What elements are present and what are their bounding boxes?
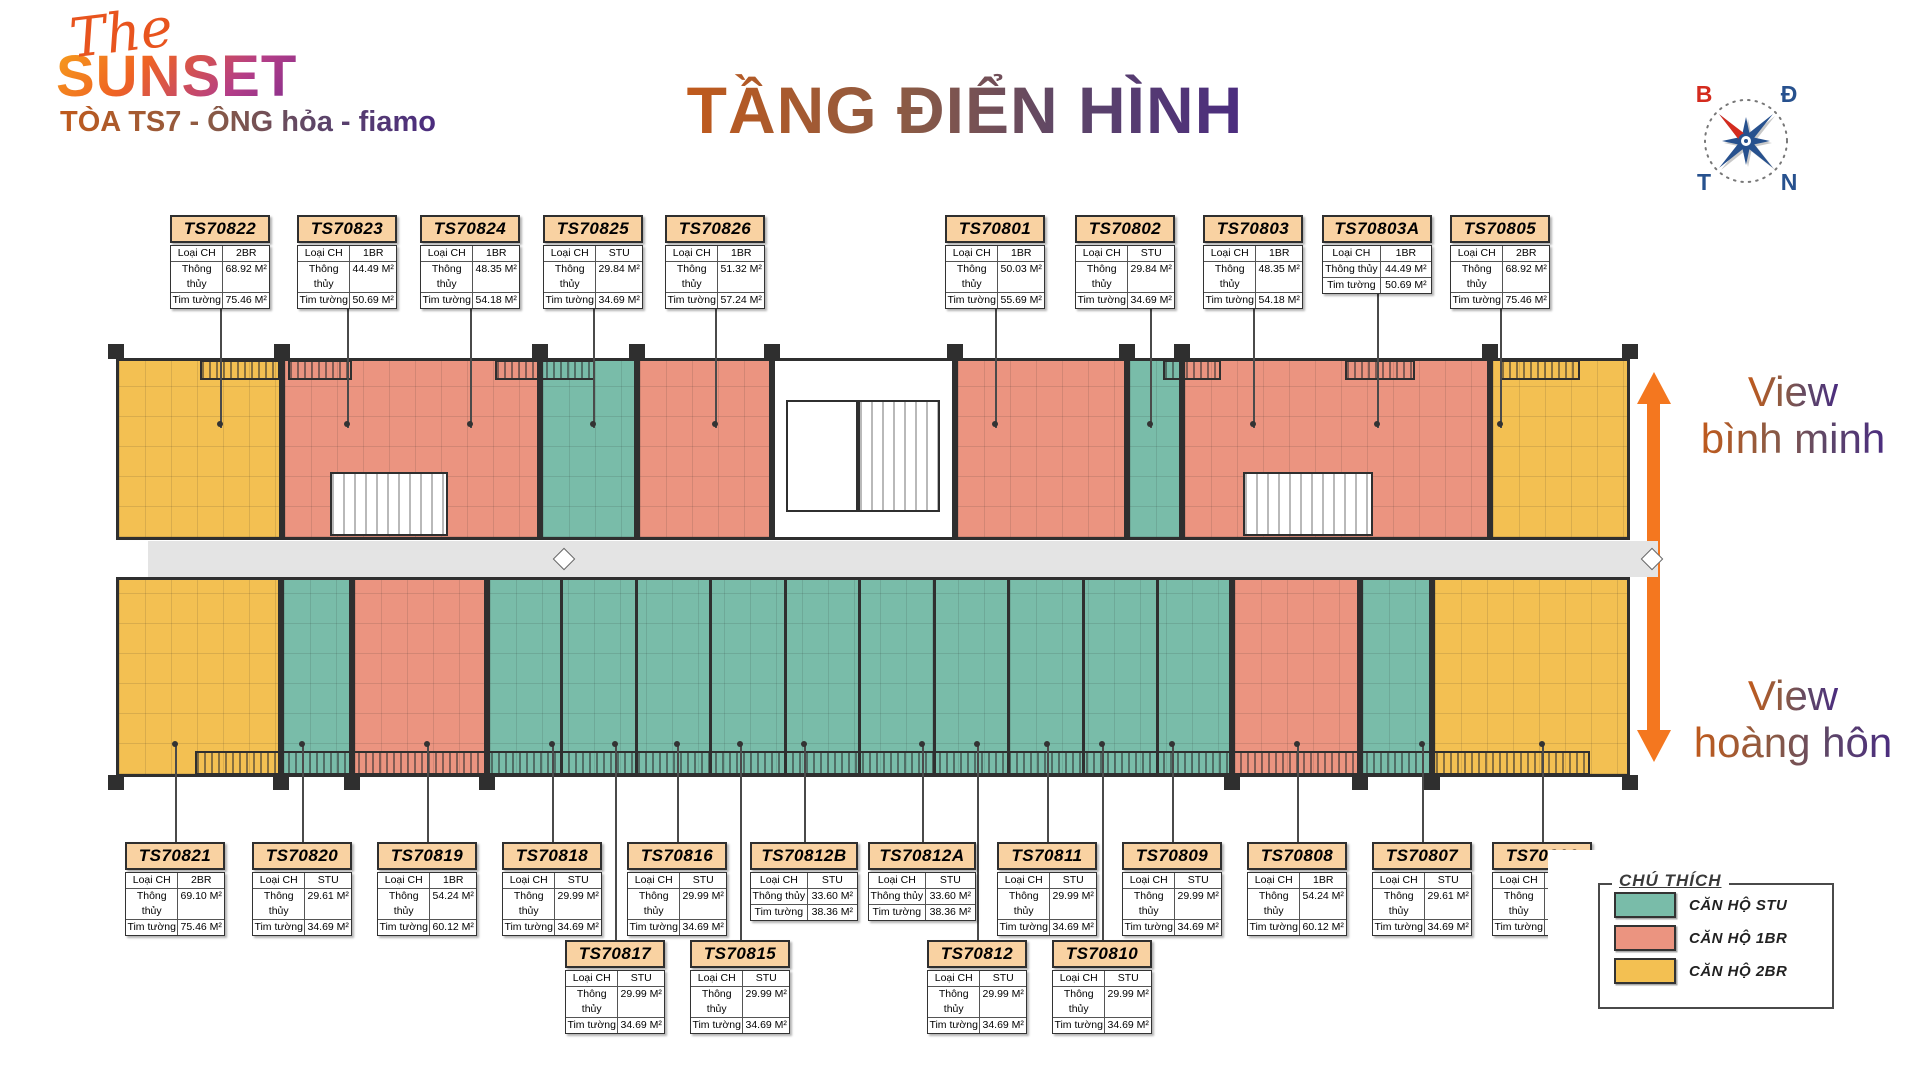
unit-type-row: Loại CH STU [1373,873,1471,888]
wall-stub [1424,775,1440,790]
unit-wall-area-row: Tim tường 34.69 M² [1053,1017,1151,1033]
connector-dot [172,741,178,747]
connector-line [1542,744,1544,842]
wall-stub [344,775,360,790]
unit-id: TS70812A [868,842,976,870]
unit-id: TS70815 [690,940,790,968]
unit-type-value: 1BR [1300,873,1346,888]
stair-core [1243,472,1373,536]
unit-card-body: Loại CH 1BR Thông thủy 50.03 M² Tim tườn… [945,245,1045,309]
unit-clear-area-value: 29.99 M² [1105,987,1151,1017]
unit-wall-area-value: 60.12 M² [1300,920,1346,935]
unit-wall-area-row: Tim tường 75.46 M² [1451,292,1549,308]
balcony [495,360,595,380]
unit-id: TS70820 [252,842,352,870]
unit-card: TS70824 Loại CH 1BR Thông thủy 48.35 M² … [420,215,520,309]
legend-swatch [1614,958,1676,984]
unit-clear-area-value: 48.35 M² [1256,262,1302,292]
unit-type-value: 1BR [473,246,519,261]
unit-id: TS70805 [1450,215,1550,243]
unit-id: TS70821 [125,842,225,870]
unit-type-value: 1BR [718,246,764,261]
unit-type-row: Loại CH 1BR [378,873,476,888]
unit-id: TS70823 [297,215,397,243]
connector-line [1500,291,1502,428]
unit-wall-area-row: Tim tường 50.69 M² [298,292,396,308]
unit-type-label: Loại CH [1323,246,1381,261]
unit-type-value: STU [305,873,351,888]
unit-wall-area-row: Tim tường 34.69 M² [503,919,601,935]
connector-dot [1169,741,1175,747]
unit-wall-area-label: Tim tường [378,920,430,935]
balcony [288,360,352,380]
unit-type-row: Loại CH STU [751,873,857,888]
connector-dot [549,741,555,747]
unit-card: TS70805 Loại CH 2BR Thông thủy 68.92 M² … [1450,215,1550,309]
unit-clear-area-label: Thông thủy [998,889,1050,919]
unit-card-body: Loại CH STU Thông thủy 29.99 M² Tim tườn… [997,872,1097,936]
unit-clear-area-row: Thông thủy 29.99 M² [1053,986,1151,1017]
unit-type-label: Loại CH [566,971,618,986]
unit-wall-area-label: Tim tường [998,920,1050,935]
unit-type-label: Loại CH [869,873,926,888]
unit-card-body: Loại CH 1BR Thông thủy 44.49 M² Tim tườn… [1322,245,1432,294]
unit-wall-area-label: Tim tường [1123,920,1175,935]
unit-wall-area-row: Tim tường 75.46 M² [171,292,269,308]
unit-card: TS70812A Loại CH STU Thông thủy 33.60 M²… [868,842,976,921]
unit-type-value: 2BR [178,873,224,888]
unit-card-body: Loại CH STU Thông thủy 29.99 M² Tim tườn… [1122,872,1222,936]
connector-dot [299,741,305,747]
unit-clear-area-row: Thông thủy 33.60 M² [751,888,857,904]
connector-dot [1250,421,1256,427]
unit-clear-area-value: 68.92 M² [223,262,269,292]
unit-1br [1232,577,1360,777]
connector-line [1422,744,1424,842]
unit-clear-area-label: Thông thủy [544,262,596,292]
unit-clear-area-value: 29.99 M² [680,889,726,919]
unit-id: TS70817 [565,940,665,968]
unit-card: TS70812B Loại CH STU Thông thủy 33.60 M²… [750,842,858,921]
unit-type-value: 2BR [1503,246,1549,261]
unit-type-value: STU [1128,246,1174,261]
unit-type-value: STU [1105,971,1151,986]
unit-card-body: Loại CH STU Thông thủy 29.61 M² Tim tườn… [1372,872,1472,936]
balcony [1163,360,1221,380]
unit-clear-area-label: Thông thủy [1323,262,1381,277]
legend-swatch [1614,925,1676,951]
connector-line [175,744,177,842]
unit-clear-area-value: 50.03 M² [998,262,1044,292]
unit-card: TS70801 Loại CH 1BR Thông thủy 50.03 M² … [945,215,1045,309]
unit-wall-area-row: Tim tường 38.36 M² [751,904,857,920]
unit-type-value: 2BR [223,246,269,261]
unit-type-label: Loại CH [1204,246,1256,261]
unit-wall-area-row: Tim tường 34.69 M² [628,919,726,935]
unit-type-label: Loại CH [998,873,1050,888]
unit-type-label: Loại CH [503,873,555,888]
unit-divider [560,577,563,777]
unit-clear-area-label: Thông thủy [171,262,223,292]
unit-id: TS70812 [927,940,1027,968]
unit-card-body: Loại CH 1BR Thông thủy 54.24 M² Tim tườn… [377,872,477,936]
unit-clear-area-label: Thông thủy [1493,889,1545,919]
unit-type-value: STU [596,246,642,261]
unit-wall-area-row: Tim tường 60.12 M² [378,919,476,935]
unit-clear-area-label: Thông thủy [298,262,350,292]
unit-clear-area-row: Thông thủy 29.99 M² [628,888,726,919]
unit-card: TS70817 Loại CH STU Thông thủy 29.99 M² … [565,940,665,1034]
unit-wall-area-value: 34.69 M² [980,1018,1026,1033]
unit-type-row: Loại CH STU [628,873,726,888]
connector-dot [467,421,473,427]
unit-wall-area-value: 34.69 M² [1050,920,1096,935]
unit-card: TS70812 Loại CH STU Thông thủy 29.99 M² … [927,940,1027,1034]
unit-type-label: Loại CH [1053,971,1105,986]
unit-type-row: Loại CH 2BR [126,873,224,888]
connector-line [804,744,806,842]
unit-stu [1127,358,1182,540]
unit-type-value: STU [1425,873,1471,888]
unit-clear-area-value: 33.60 M² [808,889,857,904]
unit-id: TS70803A [1322,215,1432,243]
connector-dot [612,741,618,747]
unit-wall-area-value: 38.36 M² [808,905,857,920]
wall-stub [1174,344,1190,359]
connector-line [740,744,742,940]
unit-card: TS70826 Loại CH 1BR Thông thủy 51.32 M² … [665,215,765,309]
core-room [786,400,858,512]
unit-card-body: Loại CH STU Thông thủy 33.60 M² Tim tườn… [750,872,858,921]
unit-card-body: Loại CH STU Thông thủy 29.99 M² Tim tườn… [690,970,790,1034]
unit-id: TS70809 [1122,842,1222,870]
unit-wall-area-row: Tim tường 57.24 M² [666,292,764,308]
unit-type-row: Loại CH STU [253,873,351,888]
unit-type-row: Loại CH 1BR [1204,246,1302,261]
unit-wall-area-value: 34.69 M² [743,1018,789,1033]
unit-clear-area-label: Thông thủy [869,889,926,904]
unit-card: TS70816 Loại CH STU Thông thủy 29.99 M² … [627,842,727,936]
unit-1br [955,358,1127,540]
unit-type-row: Loại CH STU [1053,971,1151,986]
unit-clear-area-row: Thông thủy 54.24 M² [1248,888,1346,919]
unit-clear-area-value: 29.84 M² [596,262,642,292]
unit-clear-area-label: Thông thủy [751,889,808,904]
unit-clear-area-row: Thông thủy 68.92 M² [171,261,269,292]
unit-clear-area-row: Thông thủy 44.49 M² [1323,261,1431,277]
legend-items: CĂN HỘ STUCĂN HỘ 1BRCĂN HỘ 2BR [1600,892,1832,984]
unit-divider [1007,577,1010,777]
unit-card: TS70803 Loại CH 1BR Thông thủy 48.35 M² … [1203,215,1303,309]
unit-clear-area-row: Thông thủy 33.60 M² [869,888,975,904]
unit-type-row: Loại CH 1BR [1248,873,1346,888]
unit-clear-area-value: 29.61 M² [1425,889,1471,919]
unit-card-body: Loại CH STU Thông thủy 29.84 M² Tim tườn… [1075,245,1175,309]
legend-item: CĂN HỘ STU [1614,892,1832,918]
unit-type-value: STU [555,873,601,888]
unit-type-row: Loại CH 1BR [421,246,519,261]
unit-type-label: Loại CH [946,246,998,261]
unit-wall-area-label: Tim tường [751,905,808,920]
unit-wall-area-value: 50.69 M² [1381,278,1431,293]
wall-stub [947,344,963,359]
unit-clear-area-label: Thông thủy [378,889,430,919]
unit-wall-area-row: Tim tường 60.12 M² [1248,919,1346,935]
balcony [1345,360,1415,380]
unit-clear-area-label: Thông thủy [928,987,980,1017]
unit-type-label: Loại CH [298,246,350,261]
unit-wall-area-label: Tim tường [503,920,555,935]
unit-1br [637,358,772,540]
unit-wall-area-label: Tim tường [1204,293,1256,308]
unit-wall-area-label: Tim tường [1493,920,1545,935]
unit-clear-area-value: 69.10 M² [178,889,224,919]
unit-clear-area-label: Thông thủy [1373,889,1425,919]
unit-type-label: Loại CH [421,246,473,261]
connector-dot [1419,741,1425,747]
connector-line [1047,744,1049,842]
wall-stub [108,344,124,359]
unit-card: TS70810 Loại CH STU Thông thủy 29.99 M² … [1052,940,1152,1034]
unit-type-label: Loại CH [171,246,223,261]
unit-type-row: Loại CH 2BR [1451,246,1549,261]
unit-wall-area-label: Tim tường [1053,1018,1105,1033]
connector-dot [344,421,350,427]
unit-type-value: STU [926,873,975,888]
wall-stub [629,344,645,359]
stair-core [858,400,940,512]
unit-clear-area-label: Thông thủy [421,262,473,292]
unit-clear-area-value: 29.99 M² [1050,889,1096,919]
connector-line [977,744,979,940]
unit-type-label: Loại CH [544,246,596,261]
unit-clear-area-label: Thông thủy [666,262,718,292]
legend-label: CĂN HỘ 1BR [1689,930,1787,947]
legend-title: CHÚ THÍCH [1612,871,1729,891]
unit-1br [352,577,487,777]
unit-wall-area-label: Tim tường [928,1018,980,1033]
unit-divider [933,577,936,777]
connector-line [677,744,679,842]
unit-clear-area-row: Thông thủy 29.99 M² [566,986,664,1017]
unit-wall-area-value: 75.46 M² [178,920,224,935]
unit-type-value: STU [743,971,789,986]
unit-card-body: Loại CH STU Thông thủy 29.61 M² Tim tườn… [252,872,352,936]
unit-wall-area-label: Tim tường [421,293,473,308]
unit-wall-area-value: 34.69 M² [618,1018,664,1033]
unit-card: TS70823 Loại CH 1BR Thông thủy 44.49 M² … [297,215,397,309]
unit-clear-area-label: Thông thủy [503,889,555,919]
unit-divider [635,577,638,777]
unit-wall-area-label: Tim tường [628,920,680,935]
connector-dot [590,421,596,427]
unit-type-row: Loại CH STU [998,873,1096,888]
legend-label: CĂN HỘ 2BR [1689,963,1787,980]
unit-clear-area-row: Thông thủy 29.99 M² [928,986,1026,1017]
wall-stub [1622,344,1638,359]
unit-id: TS70808 [1247,842,1347,870]
balcony [195,751,1590,775]
unit-clear-area-row: Thông thủy 29.84 M² [544,261,642,292]
unit-clear-area-label: Thông thủy [946,262,998,292]
unit-type-row: Loại CH STU [1076,246,1174,261]
unit-2br [116,358,282,540]
unit-divider [858,577,861,777]
unit-clear-area-value: 29.84 M² [1128,262,1174,292]
unit-card-body: Loại CH 1BR Thông thủy 48.35 M² Tim tườn… [1203,245,1303,309]
unit-type-label: Loại CH [666,246,718,261]
unit-wall-area-label: Tim tường [1248,920,1300,935]
unit-id: TS70812B [750,842,858,870]
unit-2br [116,577,281,777]
unit-id: TS70802 [1075,215,1175,243]
connector-line [1377,291,1379,428]
unit-clear-area-row: Thông thủy 29.99 M² [1123,888,1221,919]
unit-wall-area-value: 55.69 M² [998,293,1044,308]
unit-wall-area-row: Tim tường 34.69 M² [566,1017,664,1033]
connector-dot [974,741,980,747]
unit-stu [281,577,352,777]
unit-clear-area-label: Thông thủy [566,987,618,1017]
unit-clear-area-label: Thông thủy [1204,262,1256,292]
unit-id: TS70807 [1372,842,1472,870]
unit-type-label: Loại CH [253,873,305,888]
wall-stub [108,775,124,790]
connector-dot [674,741,680,747]
legend: CĂN HỘ STUCĂN HỘ 1BRCĂN HỘ 2BR [1598,883,1834,1009]
unit-card: TS70809 Loại CH STU Thông thủy 29.99 M² … [1122,842,1222,936]
unit-type-row: Loại CH 1BR [298,246,396,261]
unit-wall-area-label: Tim tường [869,905,926,920]
unit-clear-area-row: Thông thủy 54.24 M² [378,888,476,919]
unit-id: TS70824 [420,215,520,243]
unit-wall-area-value: 34.69 M² [680,920,726,935]
unit-clear-area-row: Thông thủy 29.84 M² [1076,261,1174,292]
unit-card-body: Loại CH STU Thông thủy 33.60 M² Tim tườn… [868,872,976,921]
unit-wall-area-value: 60.12 M² [430,920,476,935]
unit-clear-area-value: 29.99 M² [743,987,789,1017]
wall-stub [1224,775,1240,790]
unit-card: TS70822 Loại CH 2BR Thông thủy 68.92 M² … [170,215,270,309]
unit-clear-area-row: Thông thủy 48.35 M² [1204,261,1302,292]
unit-type-row: Loại CH 1BR [1323,246,1431,261]
unit-wall-area-row: Tim tường 34.69 M² [544,292,642,308]
unit-clear-area-value: 54.24 M² [430,889,476,919]
unit-card-body: Loại CH 1BR Thông thủy 51.32 M² Tim tườn… [665,245,765,309]
unit-wall-area-label: Tim tường [566,1018,618,1033]
unit-card: TS70815 Loại CH STU Thông thủy 29.99 M² … [690,940,790,1034]
unit-wall-area-label: Tim tường [666,293,718,308]
unit-type-value: STU [980,971,1026,986]
connector-line [922,744,924,842]
connector-dot [737,741,743,747]
unit-clear-area-row: Thông thủy 29.99 M² [998,888,1096,919]
unit-type-label: Loại CH [928,971,980,986]
unit-clear-area-label: Thông thủy [1123,889,1175,919]
unit-clear-area-label: Thông thủy [253,889,305,919]
unit-clear-area-label: Thông thủy [628,889,680,919]
unit-clear-area-value: 29.99 M² [555,889,601,919]
unit-card: TS70825 Loại CH STU Thông thủy 29.84 M² … [543,215,643,309]
unit-wall-area-value: 34.69 M² [1175,920,1221,935]
wall-stub [274,344,290,359]
unit-wall-area-label: Tim tường [1373,920,1425,935]
unit-clear-area-row: Thông thủy 51.32 M² [666,261,764,292]
connector-dot [712,421,718,427]
unit-type-label: Loại CH [126,873,178,888]
unit-wall-area-value: 75.46 M² [1503,293,1549,308]
connector-line [1297,744,1299,842]
unit-wall-area-label: Tim tường [544,293,596,308]
unit-card-body: Loại CH 2BR Thông thủy 69.10 M² Tim tườn… [125,872,225,936]
unit-card-body: Loại CH STU Thông thủy 29.99 M² Tim tườn… [1052,970,1152,1034]
unit-type-value: 1BR [1381,246,1431,261]
unit-id: TS70810 [1052,940,1152,968]
unit-wall-area-row: Tim tường 38.36 M² [869,904,975,920]
unit-clear-area-value: 33.60 M² [926,889,975,904]
unit-type-value: STU [1175,873,1221,888]
unit-card-body: Loại CH 2BR Thông thủy 68.92 M² Tim tườn… [170,245,270,309]
unit-clear-area-label: Thông thủy [1053,987,1105,1017]
unit-stu [540,358,637,540]
unit-divider [709,577,712,777]
connector-line [995,291,997,428]
unit-card: TS70820 Loại CH STU Thông thủy 29.61 M² … [252,842,352,936]
unit-wall-area-value: 34.69 M² [596,293,642,308]
unit-clear-area-row: Thông thủy 44.49 M² [298,261,396,292]
unit-wall-area-value: 38.36 M² [926,905,975,920]
unit-card-body: Loại CH STU Thông thủy 29.99 M² Tim tườn… [565,970,665,1034]
unit-2br [1490,358,1630,540]
unit-type-row: Loại CH STU [928,971,1026,986]
wall-stub [764,344,780,359]
wall-stub [532,344,548,359]
connector-line [1150,291,1152,428]
unit-clear-area-value: 48.35 M² [473,262,519,292]
unit-type-value: 1BR [430,873,476,888]
unit-clear-area-label: Thông thủy [126,889,178,919]
unit-wall-area-row: Tim tường 50.69 M² [1323,277,1431,293]
unit-type-value: STU [1050,873,1096,888]
unit-card-body: Loại CH STU Thông thủy 29.99 M² Tim tườn… [627,872,727,936]
unit-type-row: Loại CH STU [566,971,664,986]
unit-wall-area-value: 75.46 M² [223,293,269,308]
unit-type-value: 1BR [350,246,396,261]
unit-id: TS70818 [502,842,602,870]
connector-dot [801,741,807,747]
unit-type-value: STU [808,873,857,888]
unit-type-label: Loại CH [628,873,680,888]
stair-core [330,472,448,536]
unit-card-body: Loại CH STU Thông thủy 29.99 M² Tim tườn… [502,872,602,936]
unit-card: TS70803A Loại CH 1BR Thông thủy 44.49 M²… [1322,215,1432,294]
connector-line [715,291,717,428]
unit-card-body: Loại CH 1BR Thông thủy 54.24 M² Tim tườn… [1247,872,1347,936]
unit-divider [784,577,787,777]
unit-clear-area-value: 29.99 M² [1175,889,1221,919]
unit-clear-area-value: 68.92 M² [1503,262,1549,292]
unit-clear-area-row: Thông thủy 29.99 M² [691,986,789,1017]
connector-dot [1497,421,1503,427]
unit-wall-area-value: 34.69 M² [1425,920,1471,935]
wall-stub [1482,344,1498,359]
connector-line [593,291,595,428]
connector-dot [1374,421,1380,427]
unit-clear-area-row: Thông thủy 29.61 M² [1373,888,1471,919]
unit-card-body: Loại CH 1BR Thông thủy 44.49 M² Tim tườn… [297,245,397,309]
unit-wall-area-value: 57.24 M² [718,293,764,308]
connector-line [470,291,472,428]
